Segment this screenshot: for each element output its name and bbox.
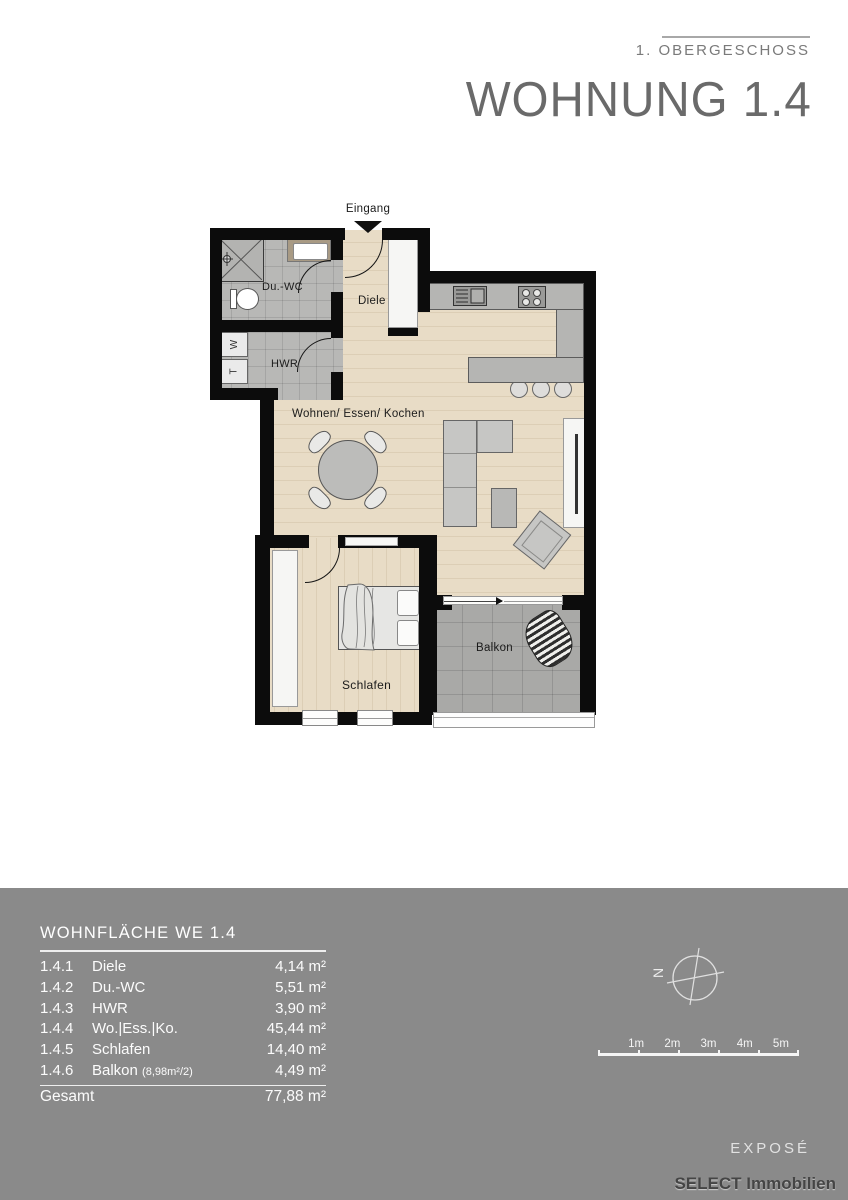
shower-glyph [220, 239, 262, 280]
wall [388, 328, 418, 336]
wall [260, 388, 274, 548]
wall [331, 238, 343, 260]
cooktop [518, 286, 546, 308]
table-row: 1.4.4 Wo.|Ess.|Ko. 45,44 m² [40, 1019, 326, 1040]
wall [430, 271, 596, 283]
expose-page: 1. OBERGESCHOSS WOHNUNG 1.4 [0, 0, 848, 1200]
wall [255, 535, 270, 725]
entrance-label: Eingang [328, 203, 408, 215]
entrance-arrow-icon [354, 221, 382, 233]
vanity-sink [287, 239, 331, 262]
expose-label: EXPOSÉ [730, 1140, 810, 1157]
wall [562, 595, 596, 610]
table-row: 1.4.3 HWR 3,90 m² [40, 999, 326, 1020]
floor-label: 1. OBERGESCHOSS [636, 42, 810, 59]
brand-logo: SELECT Immobilien [674, 1174, 836, 1194]
coffee-table [491, 488, 517, 528]
compass-north-label: N [650, 968, 666, 978]
wall [210, 228, 345, 240]
wall [584, 271, 596, 610]
balcony-sliding-door [443, 596, 563, 605]
compass-icon: N [645, 935, 745, 1025]
kitchen-sink [453, 286, 487, 311]
info-panel: WOHNFLÄCHE WE 1.4 1.4.1 Diele 4,14 m² 1.… [0, 888, 848, 1200]
wall [210, 320, 343, 332]
balcony-area-note: (8,98m²/2) [142, 1066, 193, 1078]
room-label-hwr: HWR [271, 358, 298, 370]
bedroom-window [302, 710, 338, 726]
dryer: T [221, 359, 248, 384]
dining-table [318, 440, 378, 500]
wall [331, 372, 343, 400]
bed-blanket [336, 582, 400, 652]
page-title: WOHNUNG 1.4 [466, 72, 812, 128]
tv [575, 434, 578, 514]
table-rule [40, 950, 326, 952]
wall [419, 535, 437, 715]
bedroom-window [357, 710, 393, 726]
wall-niche [345, 537, 398, 546]
wall [255, 712, 432, 725]
header-rule [662, 36, 810, 38]
table-row: 1.4.1 Diele 4,14 m² [40, 957, 326, 978]
room-label-bedroom: Schlafen [342, 678, 391, 692]
table-row: 1.4.2 Du.-WC 5,51 m² [40, 978, 326, 999]
toilet [230, 287, 260, 311]
area-table: WOHNFLÄCHE WE 1.4 1.4.1 Diele 4,14 m² 1.… [40, 924, 326, 1108]
sink-basin [293, 243, 328, 260]
table-total-row: Gesamt 77,88 m² [40, 1086, 326, 1108]
wall [418, 228, 430, 312]
room-label-balcony: Balkon [476, 642, 513, 654]
bedroom-wardrobe [272, 550, 298, 707]
floor-tile-balcony [432, 598, 594, 715]
floor-plan: W T [210, 200, 602, 740]
table-row: 1.4.6 Balkon (8,98m²/2) 4,49 m² [40, 1061, 326, 1083]
wall [331, 292, 343, 338]
room-label-duwc: Du.-WC [262, 281, 303, 293]
room-label-living: Wohnen/ Essen/ Kochen [292, 408, 425, 420]
room-label-diele: Diele [358, 295, 386, 307]
washer-label: W [229, 340, 240, 349]
kitchen-counter-right [556, 309, 584, 358]
scale-bar: 1m 2m 3m 4m 5m [598, 1038, 799, 1056]
pillow [397, 620, 419, 646]
hall-closet [388, 238, 418, 328]
kitchen-island [468, 357, 584, 383]
shower [219, 238, 264, 282]
kitchen-counter-top [428, 283, 584, 310]
area-table-title: WOHNFLÄCHE WE 1.4 [40, 924, 326, 943]
sofa-arm-left [443, 420, 477, 527]
dryer-label: T [229, 368, 240, 374]
pillow [397, 590, 419, 616]
wall [210, 228, 222, 400]
washing-machine: W [221, 332, 248, 357]
slide-arrow-icon [496, 597, 503, 605]
balcony-railing [433, 712, 595, 728]
wall [580, 610, 596, 715]
table-row: 1.4.5 Schlafen 14,40 m² [40, 1040, 326, 1061]
